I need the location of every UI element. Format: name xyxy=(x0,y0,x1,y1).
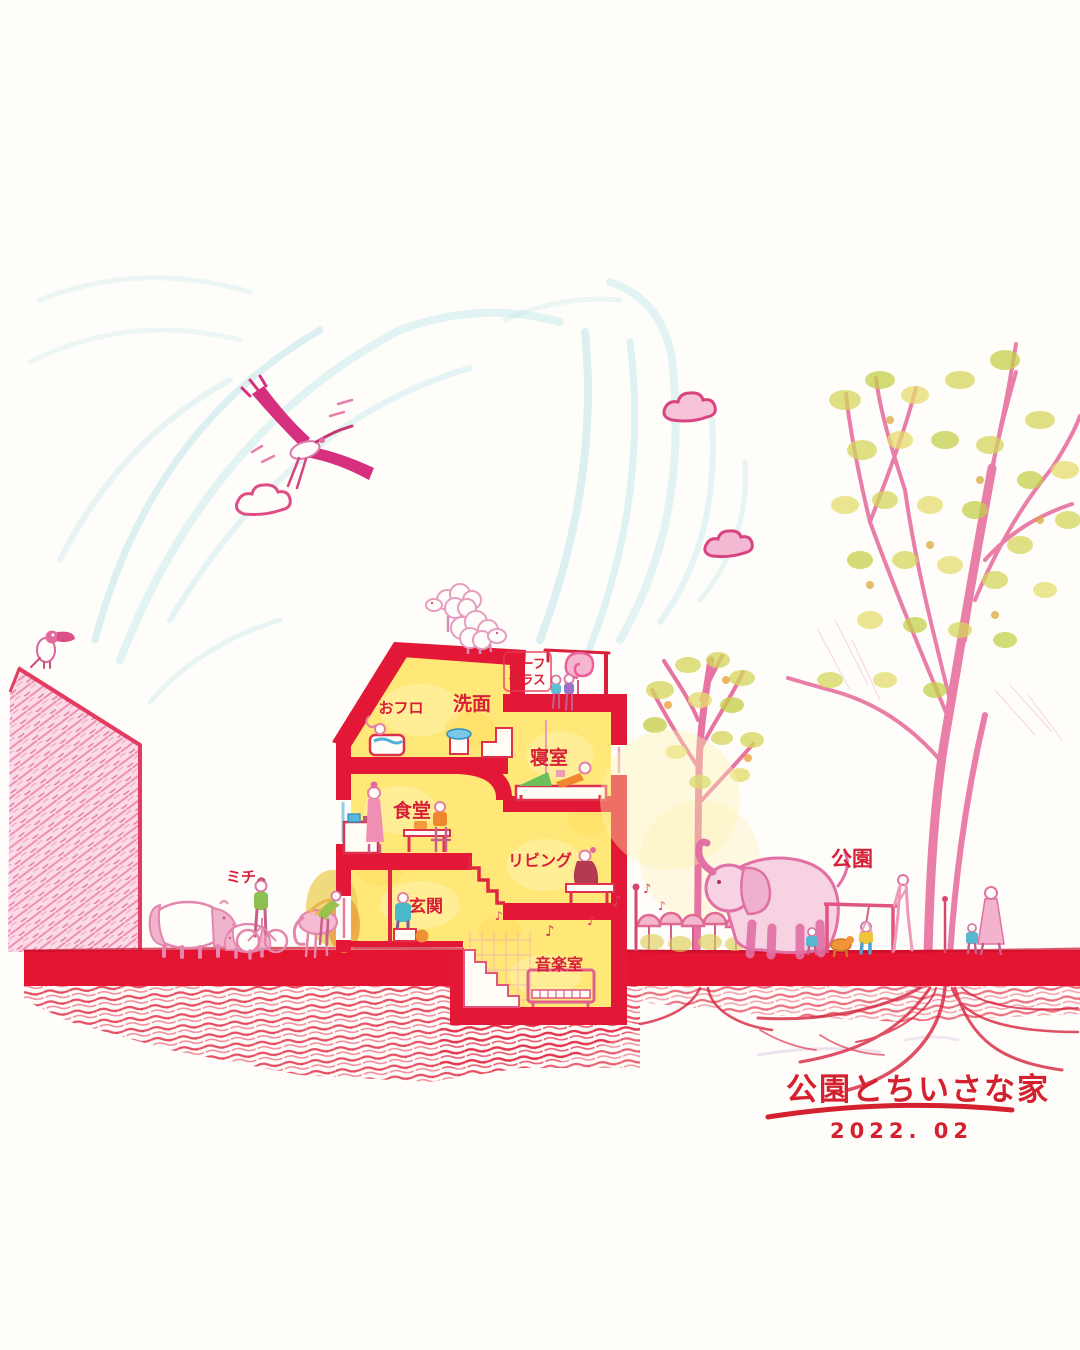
big-tree-foliage xyxy=(817,350,1080,698)
dining-floor-slab xyxy=(336,853,472,870)
label-washroom: 洗面 xyxy=(453,692,491,715)
label-street: ミチ xyxy=(226,868,256,886)
music-note: ♪ xyxy=(643,882,651,897)
ground-texture-right xyxy=(640,986,1080,1022)
label-living: リビング xyxy=(508,851,572,870)
cloud-left xyxy=(236,485,290,515)
label-bedroom: 寝室 xyxy=(530,746,568,769)
washroom-basin xyxy=(447,729,471,754)
label-roof-terrace-1: ルーフ xyxy=(509,656,546,671)
living-floor-slab xyxy=(503,903,627,920)
artwork-date: 2022. 02 xyxy=(830,1119,973,1143)
street-lamp xyxy=(633,884,640,952)
swinging-child xyxy=(859,922,873,953)
label-dining: 食堂 xyxy=(393,799,431,822)
reaching-person xyxy=(894,875,912,950)
music-note: ♪ xyxy=(545,922,555,940)
label-music-room: 音楽室 xyxy=(535,955,583,974)
sky-scribbles xyxy=(30,278,745,702)
label-roof-terrace-2: テラス xyxy=(508,672,545,687)
walking-adult xyxy=(978,887,1004,954)
entrance-partition xyxy=(388,870,392,943)
label-entrance: 玄関 xyxy=(409,896,443,917)
artwork-title-block: 公園とちいさな家 2022. 02 xyxy=(768,1072,1050,1143)
roof-sheep xyxy=(426,584,506,654)
neighbor-house xyxy=(8,668,140,952)
artwork-title: 公園とちいさな家 xyxy=(786,1072,1050,1108)
house-park-sketch: ♪ ♪ ♪ ♪ ♪ ♪ xyxy=(0,0,1080,1350)
illustration-canvas: ♪ ♪ ♪ ♪ ♪ ♪ xyxy=(0,0,1080,1350)
label-bath: おフロ xyxy=(378,699,423,717)
music-note: ♪ xyxy=(495,909,503,923)
label-park: 公園 xyxy=(831,847,873,871)
music-note: ♪ xyxy=(658,899,666,913)
walking-child xyxy=(966,924,978,953)
park-lamp xyxy=(942,896,948,953)
terrace-slab xyxy=(503,694,627,712)
basement-floor-slab xyxy=(450,1007,627,1025)
music-note: ♪ xyxy=(587,914,595,929)
cloud-mid-right xyxy=(705,531,752,557)
toucan-bird xyxy=(31,631,75,669)
music-note: ♪ xyxy=(612,892,622,910)
